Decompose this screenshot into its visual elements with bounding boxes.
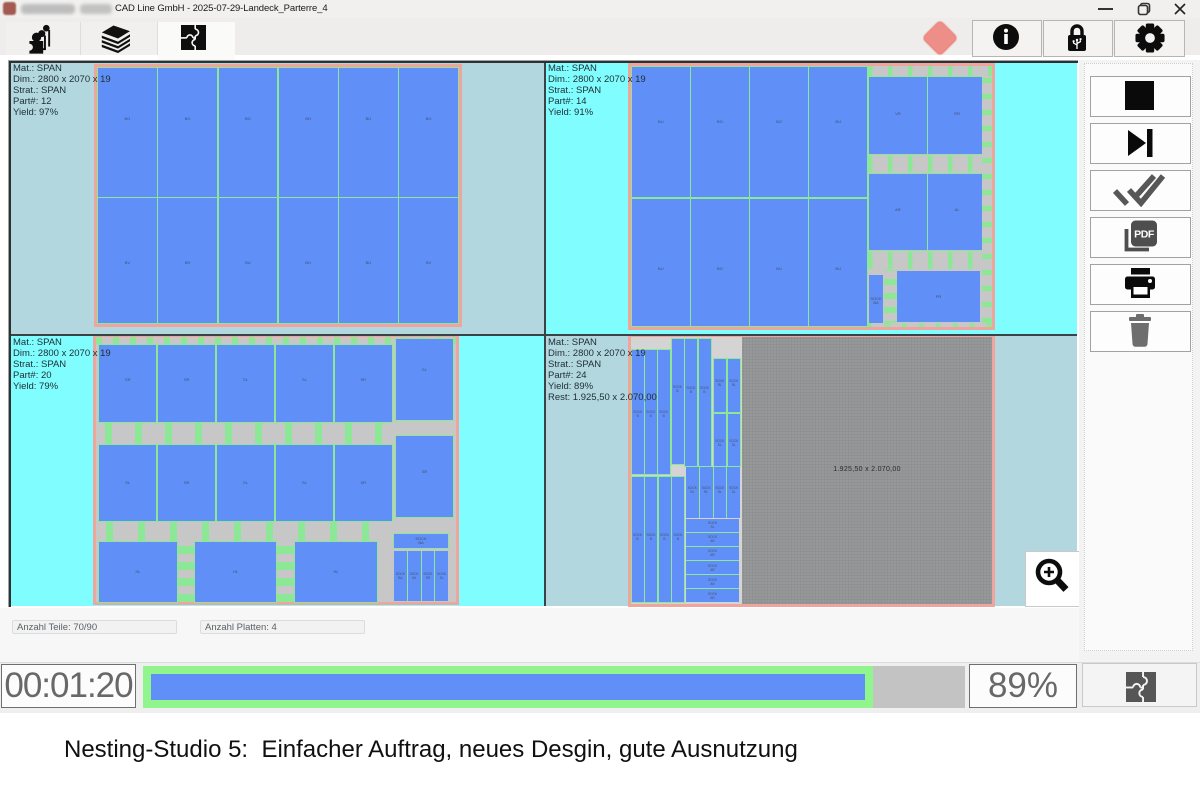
svg-text:PDF: PDF (1134, 229, 1155, 241)
